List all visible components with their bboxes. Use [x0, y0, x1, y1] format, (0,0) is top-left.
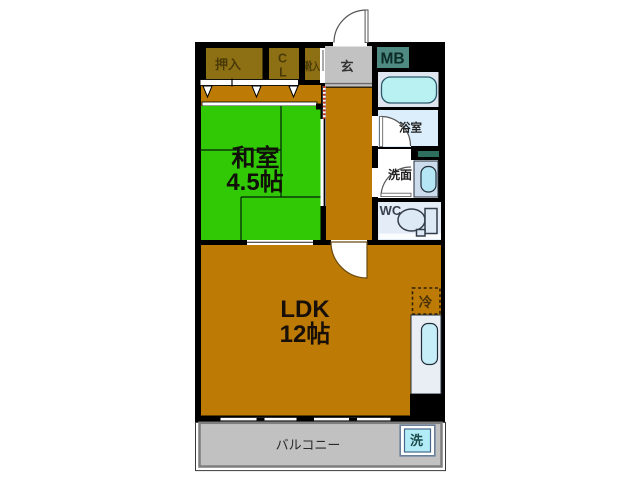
svg-text:C: C: [278, 52, 287, 66]
svg-text:LDK: LDK: [280, 296, 330, 323]
svg-text:浴室: 浴室: [399, 121, 422, 135]
svg-text:L: L: [279, 66, 287, 80]
svg-text:バルコニー: バルコニー: [276, 438, 341, 453]
svg-text:洗面: 洗面: [388, 167, 412, 182]
svg-text:玄: 玄: [340, 59, 353, 74]
svg-text:4.5帖: 4.5帖: [226, 169, 283, 196]
svg-text:12帖: 12帖: [280, 321, 331, 348]
svg-text:冷: 冷: [419, 294, 433, 310]
svg-text:洗: 洗: [410, 433, 423, 448]
svg-text:MB: MB: [380, 51, 404, 68]
svg-text:靴入: 靴入: [305, 59, 320, 73]
svg-text:押入: 押入: [215, 57, 241, 72]
svg-text:和室: 和室: [232, 144, 280, 172]
